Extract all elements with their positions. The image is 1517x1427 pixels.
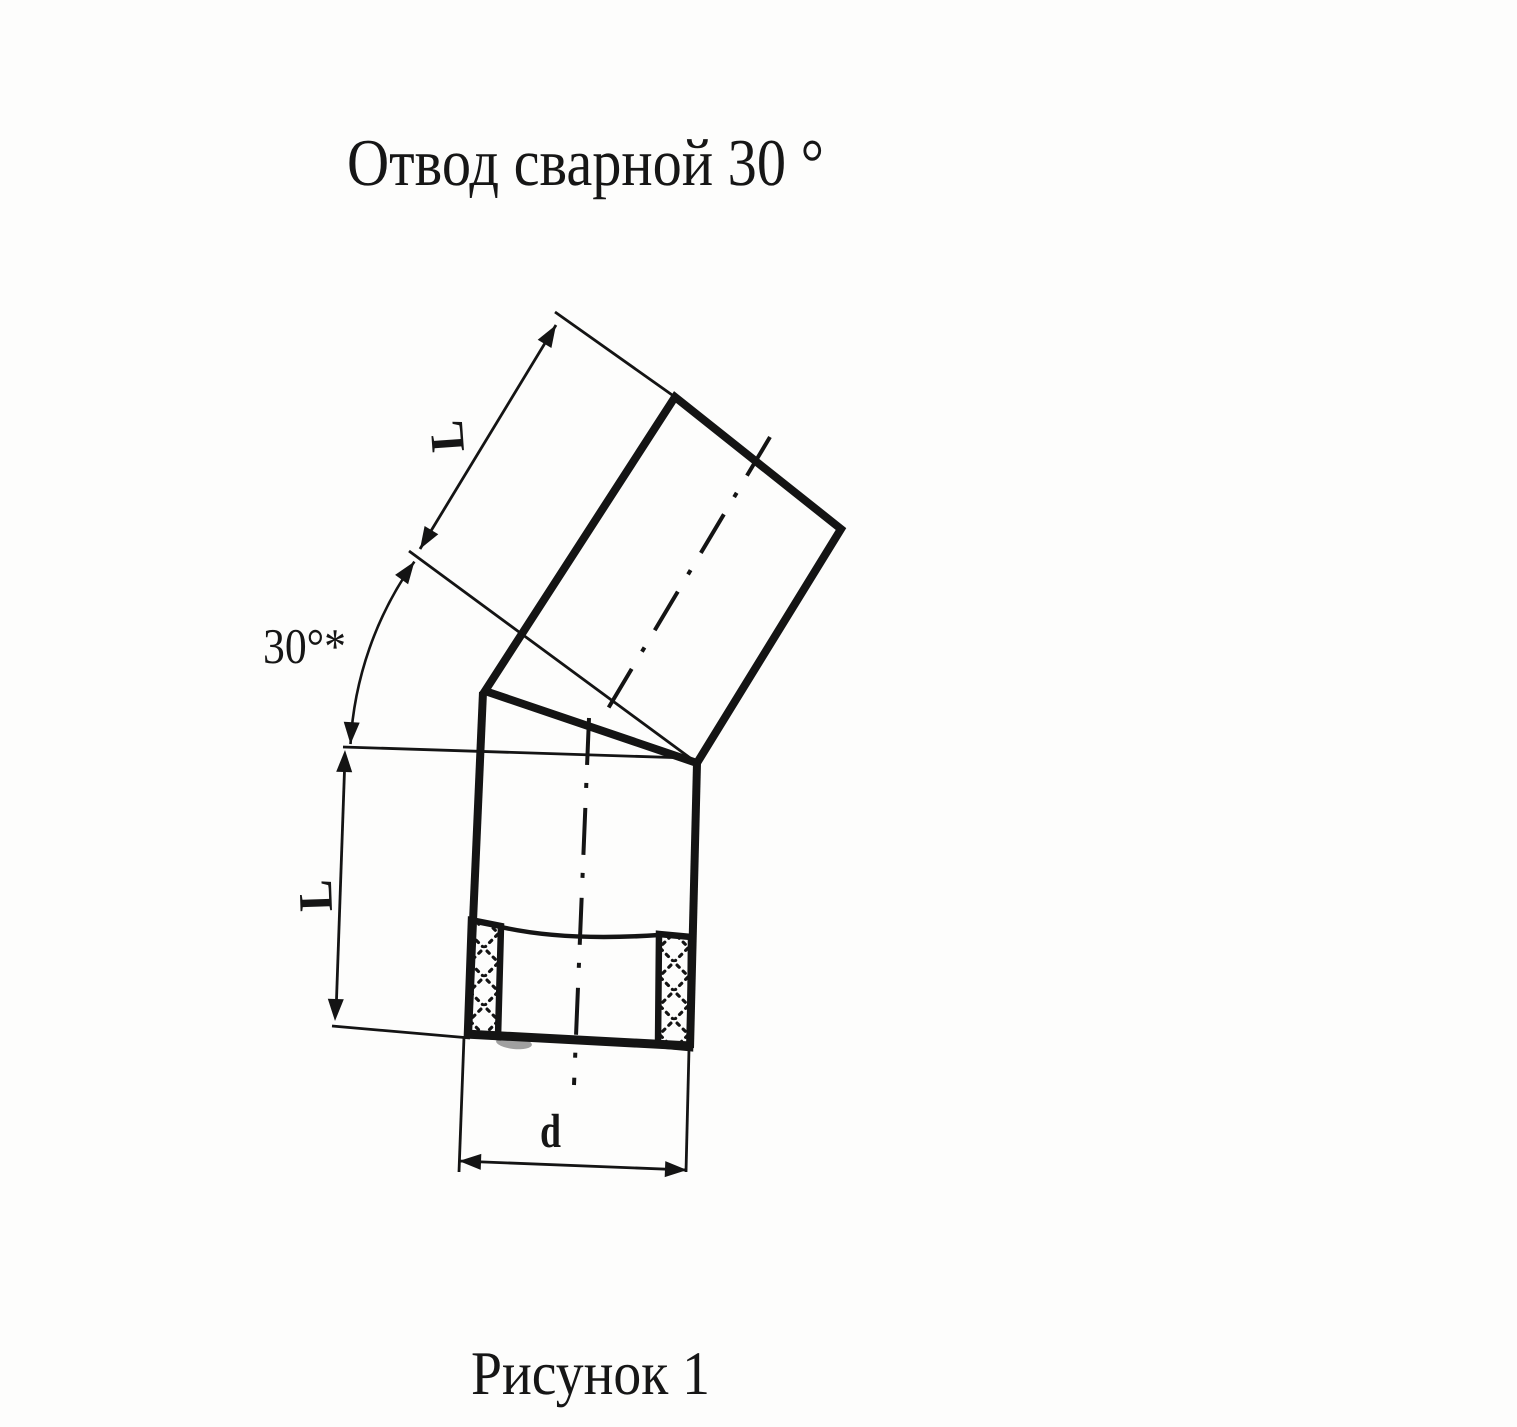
svg-text:30°*: 30°* <box>263 618 346 674</box>
svg-text:L: L <box>420 418 475 454</box>
svg-text:Рисунок 1: Рисунок 1 <box>471 1340 710 1408</box>
svg-text:Отвод сварной 30 °: Отвод сварной 30 ° <box>347 126 824 200</box>
svg-text:L: L <box>289 879 343 913</box>
svg-text:d: d <box>540 1105 561 1158</box>
